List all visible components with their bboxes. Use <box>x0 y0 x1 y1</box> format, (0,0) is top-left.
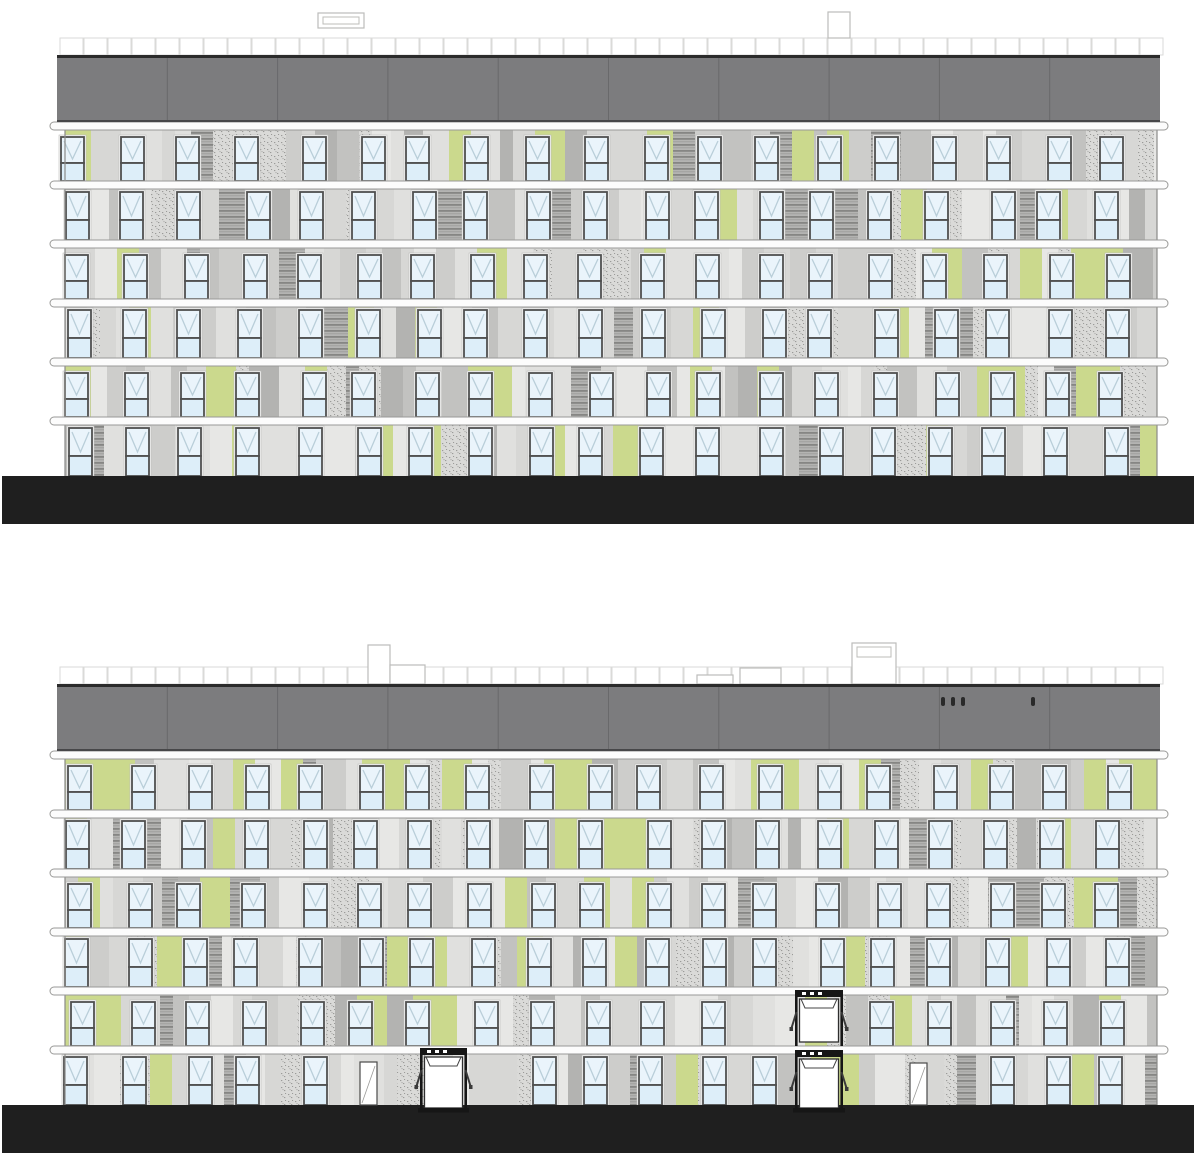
parapet-square <box>588 667 611 684</box>
window <box>404 135 431 181</box>
window-lower-pane <box>702 910 725 928</box>
green-panel <box>676 1054 698 1105</box>
window-lower-pane <box>177 910 200 928</box>
facade-panel <box>838 248 864 299</box>
window <box>1104 308 1131 358</box>
ground-line <box>2 1105 1194 1153</box>
window-lower-pane <box>235 163 258 181</box>
facade-panel <box>1129 936 1145 987</box>
window-lower-pane <box>808 338 831 358</box>
window-lower-pane <box>182 849 205 869</box>
parapet-square <box>444 667 467 684</box>
window <box>236 308 263 358</box>
window-lower-pane <box>527 220 550 240</box>
window-lower-pane <box>1095 220 1118 240</box>
green-panel <box>200 877 230 928</box>
window <box>298 190 325 240</box>
window-lower-pane <box>360 967 383 987</box>
window <box>64 819 91 869</box>
brace-foot <box>415 1085 419 1089</box>
window <box>693 190 720 240</box>
facade-panel <box>154 759 176 810</box>
window-lower-pane <box>590 399 613 417</box>
facade-panel <box>565 425 578 476</box>
floor-band <box>64 189 1157 240</box>
window <box>982 253 1009 299</box>
facade-panel <box>104 425 126 476</box>
window <box>297 426 324 476</box>
facade-panel <box>848 877 870 928</box>
window-lower-pane <box>121 163 144 181</box>
window <box>528 764 555 810</box>
window-lower-pane <box>408 849 431 869</box>
parapet-square <box>516 667 539 684</box>
facade-panel <box>100 307 116 358</box>
window-lower-pane <box>247 220 270 240</box>
window <box>296 253 323 299</box>
window <box>869 937 896 987</box>
brace-foot <box>845 1027 849 1031</box>
window-lower-pane <box>929 456 952 476</box>
window <box>121 1055 148 1105</box>
window-lower-pane <box>189 1085 212 1105</box>
green-panel <box>91 759 113 810</box>
window <box>523 819 550 869</box>
window <box>529 1000 556 1046</box>
window <box>921 253 948 299</box>
window <box>927 426 954 476</box>
facade-panel <box>900 759 919 810</box>
window <box>637 1055 664 1105</box>
window-lower-pane <box>923 281 946 299</box>
facade-panel <box>1137 307 1157 358</box>
window-lower-pane <box>696 456 719 476</box>
window-lower-pane <box>874 399 897 417</box>
window <box>184 1000 211 1046</box>
facade-panel <box>211 995 233 1046</box>
window-lower-pane <box>176 163 199 181</box>
window-lower-pane <box>641 281 664 299</box>
window <box>581 937 608 987</box>
window-lower-pane <box>875 849 898 869</box>
window <box>635 764 662 810</box>
canopy-tick <box>427 1050 431 1053</box>
facade-panel <box>838 307 860 358</box>
window-lower-pane <box>1043 792 1066 810</box>
facade-panel <box>327 366 346 417</box>
brace-foot <box>845 1087 849 1091</box>
window <box>814 882 841 928</box>
parapet-square <box>1092 667 1115 684</box>
facade-panel <box>94 1054 120 1105</box>
facade-panel <box>442 818 461 869</box>
window <box>646 882 673 928</box>
window-lower-pane <box>982 456 1005 476</box>
window <box>1042 426 1069 476</box>
window-lower-pane <box>358 910 381 928</box>
window <box>232 937 259 987</box>
window <box>923 190 950 240</box>
window-lower-pane <box>354 849 377 869</box>
window-lower-pane <box>298 281 321 299</box>
facade-panel <box>735 759 751 810</box>
facade-panel <box>447 936 463 987</box>
green-panel <box>1141 759 1157 810</box>
window <box>819 937 846 987</box>
window <box>1045 1055 1072 1105</box>
window-lower-pane <box>236 399 259 417</box>
window-lower-pane <box>580 910 603 928</box>
window-lower-pane <box>1105 456 1128 476</box>
parapet-square <box>252 667 275 684</box>
floor-band <box>63 248 1157 299</box>
window <box>350 190 377 240</box>
window-lower-pane <box>243 1028 266 1046</box>
window <box>301 371 328 417</box>
facade-panel <box>737 189 753 240</box>
window-lower-pane <box>349 1028 372 1046</box>
window <box>644 937 671 987</box>
window <box>578 882 605 928</box>
roof-top-edge <box>57 55 1160 58</box>
canopy-tick <box>810 992 814 995</box>
parapet-square <box>1020 667 1043 684</box>
parapet-square <box>204 38 227 55</box>
window <box>1093 882 1120 928</box>
facade-panel <box>610 877 632 928</box>
floor-slab <box>50 122 1168 130</box>
facade-panel <box>555 995 581 1046</box>
window-lower-pane <box>1042 910 1065 928</box>
window <box>700 819 727 869</box>
window-lower-pane <box>409 456 432 476</box>
facade-panel <box>666 248 685 299</box>
green-panel <box>792 130 814 181</box>
window-lower-pane <box>1048 163 1071 181</box>
facade-panel <box>1137 877 1157 928</box>
facade-panel <box>1129 189 1145 240</box>
facade-panel <box>219 189 238 240</box>
parapet-square <box>1116 667 1139 684</box>
floor-slab <box>50 928 1168 936</box>
parapet-squares <box>60 38 1163 55</box>
window-lower-pane <box>818 849 841 869</box>
window <box>758 253 785 299</box>
floor-slab <box>50 181 1168 189</box>
facade-panel <box>1014 877 1044 928</box>
roof <box>57 684 1160 751</box>
window-lower-pane <box>695 220 718 240</box>
window-lower-pane <box>299 456 322 476</box>
parapet-square <box>60 667 83 684</box>
window <box>416 308 443 358</box>
green-panel <box>1076 366 1098 417</box>
floor-band <box>65 759 1157 810</box>
facade-panel <box>1068 189 1087 240</box>
window-lower-pane <box>177 338 200 358</box>
window-lower-pane <box>65 281 88 299</box>
roof <box>57 55 1160 122</box>
window <box>406 882 433 928</box>
window <box>175 882 202 928</box>
window-lower-pane <box>418 338 441 358</box>
parapet-square <box>1044 38 1067 55</box>
window <box>187 764 214 810</box>
parapet-square <box>132 38 155 55</box>
floor-slab <box>50 810 1168 818</box>
window-lower-pane <box>304 849 327 869</box>
window-lower-pane <box>406 163 429 181</box>
facade-panel <box>753 995 775 1046</box>
facade-panel <box>337 130 359 181</box>
parapet-square <box>804 38 827 55</box>
facade-panel <box>1019 995 1032 1046</box>
window-lower-pane <box>703 1085 726 1105</box>
parapet-square <box>180 38 203 55</box>
facade-panel <box>612 248 631 299</box>
window-lower-pane <box>1046 399 1069 417</box>
window-lower-pane <box>587 1028 610 1046</box>
facade-panel <box>618 759 637 810</box>
parapet-square <box>1140 38 1163 55</box>
window-lower-pane <box>123 338 146 358</box>
parapet-square <box>660 38 683 55</box>
window-lower-pane <box>642 338 665 358</box>
window <box>404 764 431 810</box>
window <box>753 135 780 181</box>
window-lower-pane <box>987 163 1010 181</box>
window-lower-pane <box>129 967 152 987</box>
window <box>984 308 1011 358</box>
parapet-square <box>468 667 491 684</box>
parapet-square <box>108 667 131 684</box>
facade-panel <box>1146 366 1157 417</box>
facade-panel <box>727 1054 743 1105</box>
window-lower-pane <box>583 967 606 987</box>
parapet-square <box>492 667 515 684</box>
window-lower-pane <box>123 1085 146 1105</box>
window-lower-pane <box>1096 849 1119 869</box>
facade-panel <box>162 130 175 181</box>
parapet-square <box>972 38 995 55</box>
roof-vent-box <box>740 668 781 684</box>
facade-panel <box>1012 307 1025 358</box>
roof-vent <box>852 643 896 684</box>
window <box>467 426 494 476</box>
window-lower-pane <box>65 967 88 987</box>
window-lower-pane <box>696 281 719 299</box>
window <box>582 190 609 240</box>
window-lower-pane <box>530 456 553 476</box>
window <box>700 1000 727 1046</box>
window-lower-pane <box>358 281 381 299</box>
parapet-square <box>252 38 275 55</box>
window-lower-pane <box>818 792 841 810</box>
parapet-squares <box>60 667 1163 684</box>
window-lower-pane <box>178 456 201 476</box>
window <box>530 882 557 928</box>
canopy-tick <box>818 1052 822 1055</box>
parapet-square <box>180 667 203 684</box>
window-lower-pane <box>236 1085 259 1105</box>
window <box>187 1055 214 1105</box>
roof-mark <box>951 697 955 706</box>
facade-panel <box>957 1054 976 1105</box>
window <box>984 937 1011 987</box>
parapet-square <box>1116 38 1139 55</box>
window-lower-pane <box>589 792 612 810</box>
green-panel <box>505 877 527 928</box>
window-lower-pane <box>1047 1085 1070 1105</box>
floor-slab <box>50 299 1168 307</box>
facade-panel <box>1071 759 1084 810</box>
facade-panel <box>894 248 916 299</box>
window <box>62 1055 89 1105</box>
window-lower-pane <box>1101 1028 1124 1046</box>
window <box>404 1000 431 1046</box>
facade-panel <box>962 189 988 240</box>
window-lower-pane <box>244 281 267 299</box>
facade-panel <box>1073 936 1086 987</box>
window-lower-pane <box>238 338 261 358</box>
window-lower-pane <box>579 849 602 869</box>
window <box>925 882 952 928</box>
facade-panel <box>1017 818 1036 869</box>
facade-panel <box>283 936 296 987</box>
facade-panel <box>1145 936 1157 987</box>
window <box>873 135 900 181</box>
roof-vent <box>368 645 390 684</box>
floor-slab <box>50 869 1168 877</box>
window <box>818 426 845 476</box>
facade-panel <box>957 995 976 1046</box>
window-lower-pane <box>1106 338 1129 358</box>
parapet-square <box>564 38 587 55</box>
green-panel <box>157 936 183 987</box>
facade-panel <box>786 425 799 476</box>
facade-panel <box>278 995 297 1046</box>
window-lower-pane <box>236 456 259 476</box>
window-lower-pane <box>413 220 436 240</box>
green-panel <box>626 818 648 869</box>
window <box>120 819 147 869</box>
window-lower-pane <box>64 1085 87 1105</box>
parapet-square <box>996 38 1019 55</box>
window <box>358 937 385 987</box>
window <box>67 426 94 476</box>
window-lower-pane <box>524 281 547 299</box>
window <box>933 308 960 358</box>
facade-panel <box>619 189 641 240</box>
window-lower-pane <box>529 399 552 417</box>
window-lower-pane <box>984 849 1007 869</box>
facade-panel <box>665 425 695 476</box>
floor-band <box>65 307 1157 358</box>
window-lower-pane <box>357 338 380 358</box>
window-lower-pane <box>763 338 786 358</box>
parapet-square <box>588 38 611 55</box>
window <box>807 253 834 299</box>
window-lower-pane <box>871 967 894 987</box>
window-lower-pane <box>579 338 602 358</box>
parapet-square <box>900 667 923 684</box>
green-panel <box>1140 425 1157 476</box>
window <box>123 371 150 417</box>
facade-panel <box>1145 1054 1157 1105</box>
facade-panel <box>498 307 524 358</box>
window-lower-pane <box>466 792 489 810</box>
entrance-post <box>420 1048 423 1112</box>
window-lower-pane <box>698 163 721 181</box>
parapet-square <box>300 667 323 684</box>
window-lower-pane <box>1049 338 1072 358</box>
window <box>297 764 324 810</box>
facade-panel <box>1145 189 1157 240</box>
window <box>751 882 778 928</box>
window-lower-pane <box>645 163 668 181</box>
window <box>299 1000 326 1046</box>
window-lower-pane <box>469 399 492 417</box>
window-lower-pane <box>189 792 212 810</box>
window-lower-pane <box>641 1028 664 1046</box>
window-lower-pane <box>760 281 783 299</box>
window-lower-pane <box>406 1028 429 1046</box>
window-lower-pane <box>132 792 155 810</box>
facade-panel <box>91 366 107 417</box>
window <box>525 190 552 240</box>
window-lower-pane <box>579 456 602 476</box>
window-lower-pane <box>753 910 776 928</box>
window <box>639 253 666 299</box>
window-lower-pane <box>411 281 434 299</box>
window-lower-pane <box>465 163 488 181</box>
window <box>868 1000 895 1046</box>
window <box>757 764 784 810</box>
window-lower-pane <box>125 399 148 417</box>
facade-panel <box>469 1054 495 1105</box>
window-lower-pane <box>1095 910 1118 928</box>
window-lower-pane <box>640 456 663 476</box>
canopy-tick <box>435 1050 439 1053</box>
window-lower-pane <box>467 849 490 869</box>
window <box>926 1000 953 1046</box>
window <box>988 764 1015 810</box>
window-lower-pane <box>299 792 322 810</box>
parapet-square <box>540 667 563 684</box>
floor-band <box>65 877 1157 928</box>
facade-panel <box>495 1054 517 1105</box>
parapet-square <box>516 38 539 55</box>
window <box>866 190 893 240</box>
window-lower-pane <box>759 792 782 810</box>
facade-panel <box>151 307 173 358</box>
window <box>1045 937 1072 987</box>
window <box>240 882 267 928</box>
window <box>301 135 328 181</box>
window-lower-pane <box>870 1028 893 1046</box>
parapet-square <box>444 38 467 55</box>
entrance-post <box>795 1050 798 1112</box>
window-lower-pane <box>584 1085 607 1105</box>
window <box>466 882 493 928</box>
window <box>356 882 383 928</box>
elevation-drawing <box>0 0 1200 1166</box>
facade-panel <box>832 189 858 240</box>
facade-panel <box>396 307 415 358</box>
facade-panel <box>200 189 219 240</box>
parapet-square <box>60 38 83 55</box>
window-lower-pane <box>68 910 91 928</box>
